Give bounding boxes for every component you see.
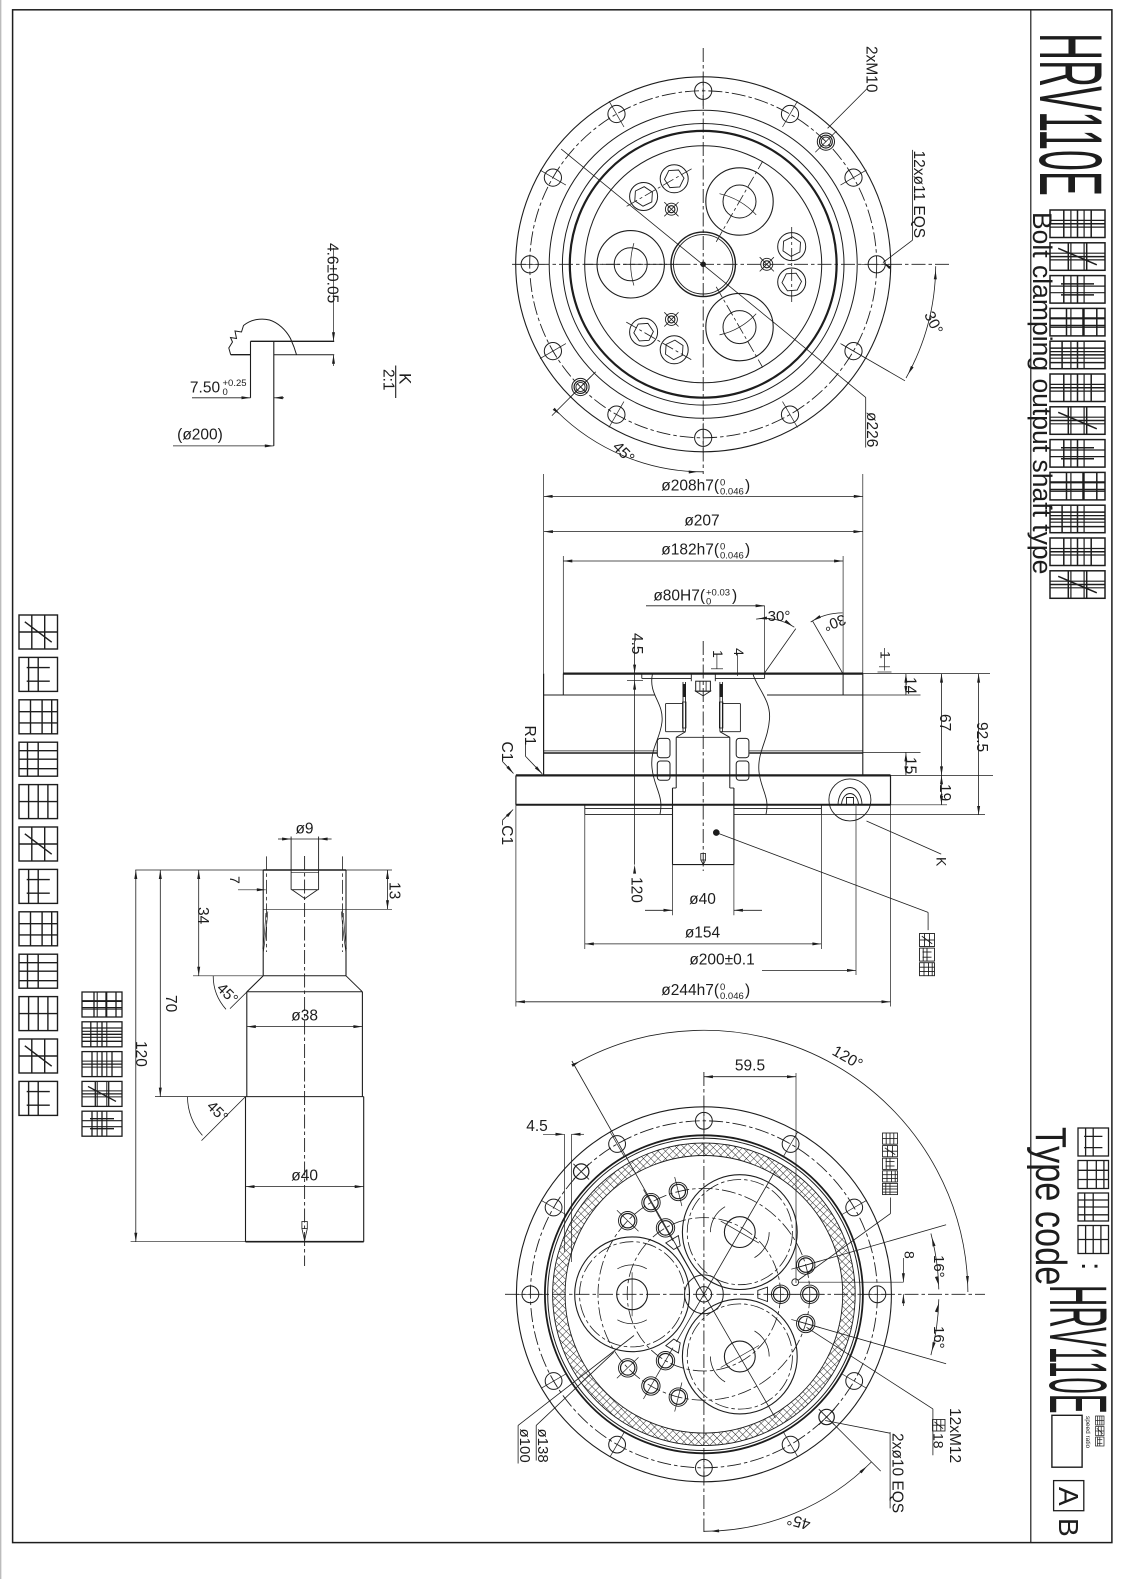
svg-text:ø226: ø226 <box>863 412 880 447</box>
svg-text:4.6±0.05: 4.6±0.05 <box>324 243 341 303</box>
svg-text:120: 120 <box>627 877 644 903</box>
svg-text:2xM10: 2xM10 <box>863 46 880 93</box>
svg-text:ø40: ø40 <box>689 891 716 908</box>
svg-text:K: K <box>396 373 415 385</box>
svg-text:ø208h7(: ø208h7( <box>661 478 720 495</box>
svg-text:ø138: ø138 <box>534 1429 551 1463</box>
svg-text:ø244h7(: ø244h7( <box>661 982 720 999</box>
svg-text:1: 1 <box>878 651 894 659</box>
svg-text:HRV110E: HRV110E <box>1020 33 1119 196</box>
svg-text:8: 8 <box>902 1251 918 1259</box>
svg-text:13: 13 <box>386 882 403 899</box>
svg-text:): ) <box>745 542 750 559</box>
svg-text:HRV110E: HRV110E <box>1031 1285 1123 1414</box>
svg-text:19: 19 <box>936 784 953 801</box>
svg-text:0: 0 <box>223 387 228 398</box>
svg-text:70: 70 <box>162 995 179 1013</box>
svg-text:30°: 30° <box>768 608 791 625</box>
svg-text:ø200±0.1: ø200±0.1 <box>689 952 754 969</box>
svg-text:ø80H7(: ø80H7( <box>653 588 706 605</box>
svg-text:34: 34 <box>194 907 211 925</box>
svg-text:(ø200): (ø200) <box>177 427 223 444</box>
svg-text:14: 14 <box>902 677 919 695</box>
svg-text:2:1: 2:1 <box>380 369 397 391</box>
svg-text:67: 67 <box>936 714 953 731</box>
svg-text:16°: 16° <box>930 1326 947 1349</box>
svg-text:A: A <box>1053 1487 1084 1506</box>
svg-text:ø100: ø100 <box>516 1429 533 1463</box>
svg-text:120: 120 <box>132 1041 149 1067</box>
svg-text:ø182h7(: ø182h7( <box>661 542 720 559</box>
svg-text:7.50: 7.50 <box>190 380 221 397</box>
svg-text:B: B <box>1053 1518 1084 1537</box>
svg-text:12xM12: 12xM12 <box>946 1408 963 1463</box>
svg-text:15: 15 <box>902 757 919 774</box>
svg-text:2xø10 EQS: 2xø10 EQS <box>889 1433 906 1513</box>
svg-text:0.046: 0.046 <box>720 487 744 498</box>
svg-text:0.046: 0.046 <box>720 991 744 1002</box>
svg-text:Type code: Type code <box>1026 1127 1075 1285</box>
svg-text:): ) <box>745 478 750 495</box>
svg-text:): ) <box>745 982 750 999</box>
svg-text:4.5: 4.5 <box>526 1118 548 1135</box>
svg-text:92.5: 92.5 <box>973 722 990 752</box>
svg-text:16°: 16° <box>930 1255 947 1278</box>
svg-text:4: 4 <box>731 648 747 656</box>
svg-text:12xø11 EQS: 12xø11 EQS <box>910 151 927 239</box>
svg-text:K: K <box>934 857 950 867</box>
svg-text:4.5: 4.5 <box>628 633 645 655</box>
svg-text:C1: C1 <box>498 742 515 762</box>
svg-text:ø154: ø154 <box>685 924 721 941</box>
svg-text:): ) <box>732 588 737 605</box>
svg-text:C1: C1 <box>498 825 515 845</box>
svg-text::: : <box>1075 1262 1108 1270</box>
svg-text:0.046: 0.046 <box>720 551 744 562</box>
svg-text:speed ratio: speed ratio <box>1084 1416 1091 1449</box>
svg-text:Bolt clamping output shaft typ: Bolt clamping output shaft type <box>1027 212 1057 574</box>
svg-text:R1: R1 <box>521 726 538 746</box>
svg-text:ø207: ø207 <box>684 513 719 530</box>
svg-text:7: 7 <box>227 876 243 884</box>
svg-text:1: 1 <box>710 650 726 658</box>
svg-text:59.5: 59.5 <box>735 1057 765 1074</box>
svg-text:ø9: ø9 <box>295 821 313 838</box>
